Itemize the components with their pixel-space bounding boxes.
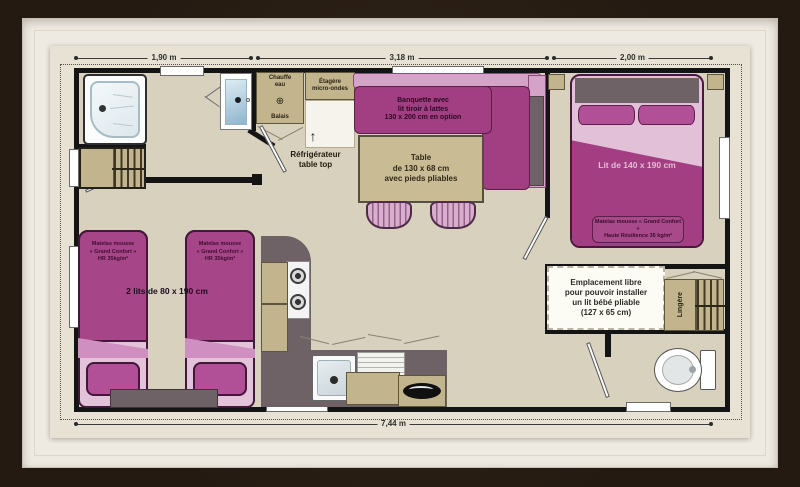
hanging-rail [696, 279, 724, 331]
headboard [575, 78, 699, 103]
twin-bed-mattress-label: Matelas mousse « Grand Confort » HR 35kg… [187, 241, 253, 264]
stove [286, 261, 310, 319]
heater-vent-icon: ⊕ [276, 97, 284, 107]
dimension-dot [552, 56, 556, 60]
nightstand-left [548, 74, 565, 90]
water-heater-label: Chauffe eau [269, 75, 291, 89]
dimension-label: 3,18 m [386, 53, 419, 62]
dimension-label: 7,44 m [377, 419, 410, 428]
pillow [638, 105, 695, 125]
entry-door [220, 73, 252, 130]
window-top-bathroom [160, 66, 204, 76]
kitchen-cabinet [261, 262, 288, 304]
dimension-dot [709, 422, 713, 426]
dimension-dot [709, 56, 713, 60]
entry-door-knob [246, 98, 250, 102]
stove-burner [290, 268, 306, 284]
broom-label: Balais [271, 114, 289, 121]
window-bottom-wc [626, 402, 671, 412]
dimension-dot [74, 56, 78, 60]
bench-label: Banquette avec lit tiroir à lattes 130 x… [385, 97, 462, 123]
kids-wardrobe [79, 147, 146, 189]
wall-end-post [252, 174, 262, 185]
double-bed-mattress-tag: Matelas mousse « Grand Confort » Haute R… [592, 216, 684, 243]
twin-bed: Matelas mousse « Grand Confort » HR 35kg… [78, 230, 148, 408]
window-right-bedroom [719, 137, 730, 219]
baby-bed-space-note: Emplacement libre pour pouvoir installer… [547, 266, 665, 330]
bathtub [83, 74, 147, 145]
twin-bed: Matelas mousse « Grand Confort » HR 35kg… [185, 230, 255, 408]
window-left-wardrobe [69, 149, 79, 187]
entry-door-handle [235, 97, 241, 103]
rail-bar [695, 305, 725, 307]
chair [430, 201, 476, 229]
pillow [578, 105, 635, 125]
dimension-label: 1,90 m [148, 53, 181, 62]
double-bed-mattress-label: Matelas mousse « Grand Confort » Haute R… [593, 219, 683, 240]
dimension-line-bottom: 7,44 m [76, 424, 711, 425]
kitchen-cabinet [398, 375, 446, 407]
bathtub-drain [99, 105, 106, 112]
water-heater-closet: Chauffe eau ⊕ Balais [256, 72, 304, 124]
pan-highlight [409, 386, 433, 393]
toilet-flush [689, 366, 696, 373]
kitchen-cabinet [261, 304, 288, 352]
dimension-dot [249, 56, 253, 60]
microwave-shelf: Étagère micro-ondes [305, 72, 355, 100]
wall-wc-stub [605, 329, 611, 357]
twin-beds-label: 2 lits de 80 x 190 cm [97, 286, 237, 296]
double-bed-label: Lit de 140 x 190 cm [572, 160, 702, 170]
toilet-bowl [654, 348, 702, 392]
wall-hallway [143, 177, 255, 183]
toilet-tank [700, 350, 716, 390]
kitchen-cabinet [346, 372, 400, 405]
dining-table: Table de 130 x 68 cm avec pieds pliables [358, 135, 484, 203]
nightstand-right [707, 74, 724, 90]
dimension-line-top-middle: 3,18 m [258, 58, 546, 59]
microwave-shelf-label: Étagère micro-ondes [312, 79, 348, 93]
bathtub-basin [90, 81, 140, 138]
twin-bed-mattress-label: Matelas mousse « Grand Confort » HR 35kg… [80, 241, 146, 264]
dimension-dot [256, 56, 260, 60]
stove-burner [290, 294, 306, 310]
baby-bed-space-label: Emplacement libre pour pouvoir installer… [565, 278, 647, 318]
kids-nightstand [110, 389, 218, 408]
kids-hanging-rail [113, 149, 144, 187]
chair [366, 201, 412, 229]
linen-closet: Lingère [664, 279, 696, 331]
double-bed: Lit de 140 x 190 cm Matelas mousse « Gra… [570, 74, 704, 248]
dimension-dot [545, 56, 549, 60]
rail-bar [112, 168, 146, 170]
dimension-line-top-right: 2,00 m [554, 58, 711, 59]
dimension-line-top-left: 1,90 m [76, 58, 252, 59]
dimension-dot [74, 422, 78, 426]
frying-pan [403, 383, 441, 399]
table-label: Table de 130 x 68 cm avec pieds pliables [385, 153, 458, 184]
bench-seat: Banquette avec lit tiroir à lattes 130 x… [354, 86, 492, 134]
dimension-label: 2,00 m [616, 53, 649, 62]
sink-drain [330, 376, 338, 384]
linen-closet-label: Lingère [677, 292, 684, 317]
arrow-up-icon: ↑ [303, 125, 323, 147]
framed-floor-plan: 1,90 m 3,18 m 2,00 m 7,44 m [0, 0, 800, 487]
